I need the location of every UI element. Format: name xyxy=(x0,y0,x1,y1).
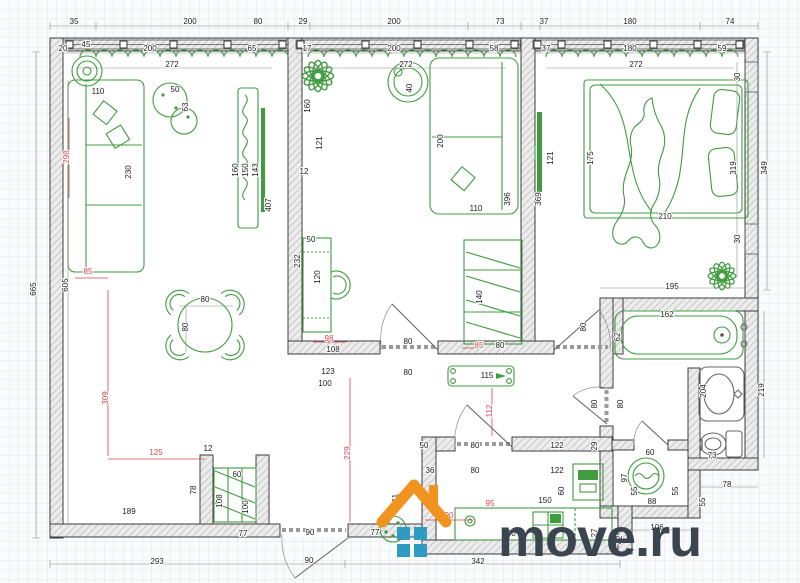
dim-label: 80 xyxy=(201,295,210,304)
dim-label: 35 xyxy=(70,17,79,26)
dim-label: 80 xyxy=(181,322,190,331)
dim-label: 200 xyxy=(436,134,445,148)
dim-label: 665 xyxy=(29,282,38,296)
dim-label: 63 xyxy=(181,102,190,111)
dim-label: 121 xyxy=(315,136,324,150)
dim-label: 12 xyxy=(300,167,309,176)
dim-label: 189 xyxy=(122,507,136,516)
dim-label: 115 xyxy=(481,371,494,380)
dim-label: 210 xyxy=(658,212,672,221)
dim-label: 50 xyxy=(307,235,316,244)
dim-label: 90 xyxy=(305,556,314,565)
dim-label: 45 xyxy=(82,40,91,49)
watermark: move.ru xyxy=(374,472,701,564)
dim-label: 140 xyxy=(475,290,484,304)
dim-label: 59 xyxy=(718,44,727,53)
dim-label: 369 xyxy=(534,192,543,206)
dim-label: 17 xyxy=(303,44,312,53)
dim-label: 121 xyxy=(546,151,555,165)
dim-label: 175 xyxy=(586,151,595,165)
dim-label: 73 xyxy=(708,451,717,460)
dim-label: 150 xyxy=(241,163,250,177)
dim-label: 90 xyxy=(306,528,315,537)
dim-label: 78 xyxy=(189,485,198,494)
dim-label: 180 xyxy=(623,44,637,53)
dim-label: 122 xyxy=(550,441,564,450)
dim-label: 200 xyxy=(387,44,401,53)
dim-label: 29 xyxy=(590,441,599,450)
dim-label: 110 xyxy=(470,204,483,213)
dim-label: 230 xyxy=(124,165,133,179)
dim-label-red: 309 xyxy=(101,391,110,405)
dim-label: 143 xyxy=(251,163,260,177)
dim-label: 108 xyxy=(215,494,224,508)
dim-label: 100 xyxy=(318,379,332,388)
dim-label: 37 xyxy=(542,44,551,53)
dim-label-red: 98 xyxy=(325,334,334,343)
dim-label: 80 xyxy=(590,399,599,408)
dim-label: 80 xyxy=(404,337,413,346)
dim-label: 29 xyxy=(299,17,308,26)
dim-label: 37 xyxy=(540,17,549,26)
logo-windows xyxy=(397,527,427,557)
dim-label: 74 xyxy=(726,17,735,26)
dim-label: 62 xyxy=(613,332,622,341)
dim-label: 319 xyxy=(729,161,738,175)
dim-label: 272 xyxy=(399,60,413,69)
dim-label: 80 xyxy=(404,368,413,377)
dim-label: 204 xyxy=(699,384,708,398)
dim-label: 80 xyxy=(496,341,505,350)
dim-label-red: 125 xyxy=(149,448,163,457)
dim-label: 195 xyxy=(665,282,679,291)
dim-label: 100 xyxy=(241,500,250,514)
dim-label-red: 85 xyxy=(84,267,93,276)
dim-label: 160 xyxy=(303,99,312,113)
dim-label: 407 xyxy=(264,198,273,212)
dim-label: 80 xyxy=(254,17,263,26)
dim-label: 60 xyxy=(646,448,655,457)
dim-label: 160 xyxy=(231,163,240,177)
dim-label: 12 xyxy=(204,444,213,453)
dim-label: 200 xyxy=(387,17,401,26)
dim-label: 200 xyxy=(143,44,157,53)
dim-label: 80 xyxy=(579,322,588,331)
dim-label: 180 xyxy=(623,17,637,26)
dim-label: 396 xyxy=(503,192,512,206)
dim-label: 50 xyxy=(420,441,429,450)
dim-label: 80 xyxy=(616,399,625,408)
dim-label: 232 xyxy=(293,254,302,268)
dim-label: 73 xyxy=(496,17,505,26)
dim-label: 123 xyxy=(321,367,335,376)
dim-label: 200 xyxy=(183,17,197,26)
house-logo-icon xyxy=(374,472,456,564)
floor-plan-page: 3520080292007337180744520200651720058371… xyxy=(0,0,800,583)
dim-label: 272 xyxy=(165,60,179,69)
dim-label: 50 xyxy=(171,85,180,94)
dim-label: 78 xyxy=(723,480,732,489)
dim-label: 30 xyxy=(733,234,742,243)
dim-label: 349 xyxy=(760,161,769,175)
dim-label-red: 112 xyxy=(485,404,494,417)
dim-label: 272 xyxy=(629,60,643,69)
dim-label: 293 xyxy=(150,557,164,566)
dim-label: 80 xyxy=(471,441,480,450)
dim-label: 60 xyxy=(233,470,242,479)
brand-text: move.ru xyxy=(498,513,701,564)
dim-label-red: 229 xyxy=(343,446,352,460)
dim-label: 605 xyxy=(61,278,70,292)
dim-label-red: 298 xyxy=(62,150,71,164)
dim-label: 110 xyxy=(92,87,105,96)
dim-label: 40 xyxy=(405,83,414,92)
dim-label: 219 xyxy=(757,383,766,397)
dim-label: 77 xyxy=(239,529,248,538)
dim-label: 20 xyxy=(59,44,68,53)
dim-label-red: 85 xyxy=(475,341,484,350)
dim-label: 108 xyxy=(326,345,340,354)
dim-label: 65 xyxy=(248,44,257,53)
dim-label: 162 xyxy=(660,310,674,319)
dim-label: 58 xyxy=(490,44,499,53)
dim-label: 120 xyxy=(313,270,322,284)
dim-label: 30 xyxy=(733,72,742,81)
